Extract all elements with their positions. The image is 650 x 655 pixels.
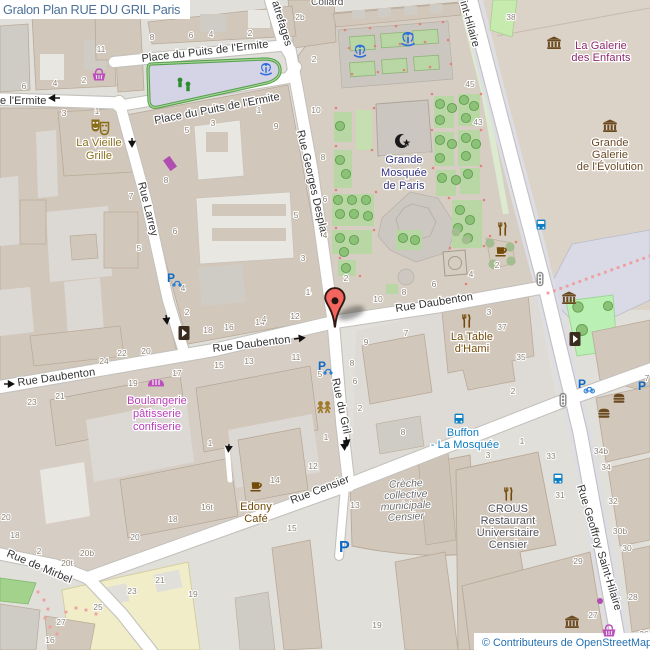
svg-text:4: 4: [181, 283, 186, 293]
svg-text:2b: 2b: [295, 12, 305, 22]
svg-text:16t: 16t: [201, 502, 213, 512]
svg-text:11: 11: [292, 352, 301, 362]
svg-text:CROUS: CROUS: [488, 503, 528, 515]
svg-text:© Contributeurs de OpenStreetM: © Contributeurs de OpenStreetMap: [482, 637, 650, 649]
svg-text:13: 13: [244, 356, 254, 366]
svg-text:Collard: Collard: [311, 0, 343, 8]
svg-text:34b: 34b: [594, 446, 608, 456]
svg-text:e l'Ermite: e l'Ermite: [0, 95, 47, 107]
svg-text:10: 10: [311, 105, 321, 115]
svg-text:6: 6: [173, 226, 178, 236]
svg-text:35: 35: [516, 352, 526, 362]
svg-text:22: 22: [117, 348, 127, 358]
svg-text:20: 20: [1, 512, 11, 522]
svg-text:24: 24: [99, 356, 109, 366]
svg-text:16: 16: [45, 635, 55, 645]
svg-text:18: 18: [168, 514, 178, 524]
svg-text:20: 20: [130, 532, 140, 542]
svg-text:18: 18: [10, 530, 20, 540]
svg-text:23: 23: [127, 586, 137, 596]
svg-text:de l'Évolution: de l'Évolution: [577, 160, 644, 173]
svg-text:8: 8: [401, 427, 406, 437]
svg-text:30: 30: [622, 543, 632, 553]
svg-text:3: 3: [62, 108, 67, 118]
svg-text:3: 3: [211, 118, 216, 128]
svg-text:Censier: Censier: [489, 539, 528, 551]
svg-text:8: 8: [402, 287, 407, 297]
svg-text:Galerie: Galerie: [592, 149, 628, 161]
svg-text:15: 15: [214, 360, 224, 370]
svg-text:1: 1: [95, 106, 100, 116]
svg-text:37: 37: [497, 322, 507, 332]
svg-text:2: 2: [495, 260, 500, 270]
svg-text:2: 2: [37, 546, 42, 556]
svg-text:4: 4: [53, 78, 58, 88]
svg-text:43: 43: [473, 117, 483, 127]
svg-text:Censier: Censier: [387, 510, 424, 524]
svg-text:8: 8: [164, 175, 169, 185]
svg-text:1: 1: [520, 436, 525, 446]
svg-text:Buffon: Buffon: [447, 427, 479, 439]
svg-text:20b: 20b: [80, 548, 94, 558]
svg-text:11: 11: [97, 44, 106, 54]
svg-text:6: 6: [432, 279, 437, 289]
svg-text:1: 1: [306, 287, 311, 297]
svg-text:12: 12: [308, 461, 318, 471]
svg-text:6: 6: [353, 376, 358, 386]
svg-text:P: P: [167, 271, 175, 285]
svg-text:32: 32: [608, 496, 618, 506]
svg-text:9: 9: [274, 121, 279, 131]
svg-text:9: 9: [364, 337, 369, 347]
svg-text:2: 2: [358, 403, 363, 413]
svg-text:Café: Café: [244, 513, 268, 525]
svg-text:6: 6: [323, 194, 328, 204]
svg-text:2: 2: [511, 386, 516, 396]
svg-text:Restaurant: Restaurant: [481, 515, 536, 527]
svg-text:38: 38: [506, 12, 516, 22]
svg-text:12: 12: [290, 311, 300, 321]
svg-text:45: 45: [465, 79, 475, 89]
svg-text:15: 15: [287, 523, 297, 533]
svg-text:2: 2: [344, 273, 349, 283]
svg-text:7: 7: [645, 373, 650, 383]
svg-text:3: 3: [486, 450, 491, 460]
svg-text:Grande: Grande: [385, 154, 422, 166]
svg-text:de Paris: de Paris: [383, 180, 425, 192]
svg-text:27: 27: [588, 610, 598, 620]
svg-text:19: 19: [128, 378, 138, 388]
svg-text:17: 17: [172, 368, 182, 378]
svg-text:La Galerie: La Galerie: [575, 40, 627, 52]
svg-text:23: 23: [27, 397, 37, 407]
svg-text:4: 4: [262, 314, 267, 324]
svg-text:30b: 30b: [613, 526, 627, 536]
svg-text:4: 4: [323, 230, 328, 240]
svg-text:28: 28: [628, 592, 638, 602]
svg-text:13: 13: [350, 500, 360, 510]
svg-text:La Table: La Table: [451, 331, 493, 343]
svg-text:14: 14: [270, 475, 280, 485]
svg-text:confiserie: confiserie: [133, 421, 181, 433]
svg-text:1: 1: [324, 432, 329, 442]
svg-text:Grille: Grille: [86, 150, 112, 162]
svg-text:25: 25: [93, 602, 103, 612]
svg-text:27: 27: [56, 617, 66, 627]
svg-text:2: 2: [248, 28, 253, 38]
svg-text:2: 2: [312, 54, 317, 64]
svg-text:1: 1: [208, 438, 213, 448]
svg-text:Gralon Plan RUE DU GRIL Paris: Gralon Plan RUE DU GRIL Paris: [3, 2, 180, 17]
svg-text:d'Hami: d'Hami: [455, 343, 490, 355]
svg-text:La Vieille: La Vieille: [76, 137, 121, 149]
svg-text:Universitaire: Universitaire: [477, 527, 539, 539]
svg-text:5: 5: [294, 210, 299, 220]
svg-text:34: 34: [601, 462, 611, 472]
svg-text:4: 4: [209, 29, 214, 39]
svg-text:8: 8: [150, 32, 155, 42]
svg-text:5: 5: [137, 243, 142, 253]
svg-text:2: 2: [185, 307, 190, 317]
svg-text:4: 4: [469, 269, 474, 279]
svg-text:8: 8: [321, 152, 326, 162]
svg-text:10: 10: [373, 294, 383, 304]
svg-text:pâtisserie: pâtisserie: [133, 408, 181, 420]
svg-text:Boulangerie: Boulangerie: [127, 395, 187, 407]
svg-text:8: 8: [350, 358, 355, 368]
svg-text:2: 2: [82, 75, 87, 85]
svg-text:7: 7: [129, 191, 134, 201]
svg-text:7: 7: [404, 328, 409, 338]
svg-text:19: 19: [372, 620, 382, 630]
svg-text:21: 21: [55, 391, 65, 401]
svg-text:29: 29: [573, 556, 583, 566]
svg-text:5: 5: [318, 369, 323, 379]
svg-text:6: 6: [22, 81, 27, 91]
svg-text:1: 1: [257, 105, 262, 115]
svg-text:Mosquée: Mosquée: [381, 167, 427, 179]
svg-text:5: 5: [185, 125, 190, 135]
svg-text:20t: 20t: [61, 558, 73, 568]
svg-text:P: P: [339, 539, 350, 556]
svg-text:19: 19: [188, 589, 198, 599]
svg-text:18: 18: [203, 325, 213, 335]
svg-text:20: 20: [141, 346, 151, 356]
svg-text:3: 3: [487, 307, 492, 317]
svg-text:6: 6: [189, 30, 194, 40]
svg-text:des Enfants: des Enfants: [571, 52, 631, 64]
svg-text:16: 16: [224, 322, 234, 332]
svg-text:Grande: Grande: [591, 137, 628, 149]
svg-text:21: 21: [155, 575, 165, 585]
svg-text:3: 3: [301, 253, 306, 263]
svg-text:Edony: Edony: [240, 501, 272, 513]
svg-text:33: 33: [546, 451, 556, 461]
svg-text:31: 31: [555, 490, 565, 500]
